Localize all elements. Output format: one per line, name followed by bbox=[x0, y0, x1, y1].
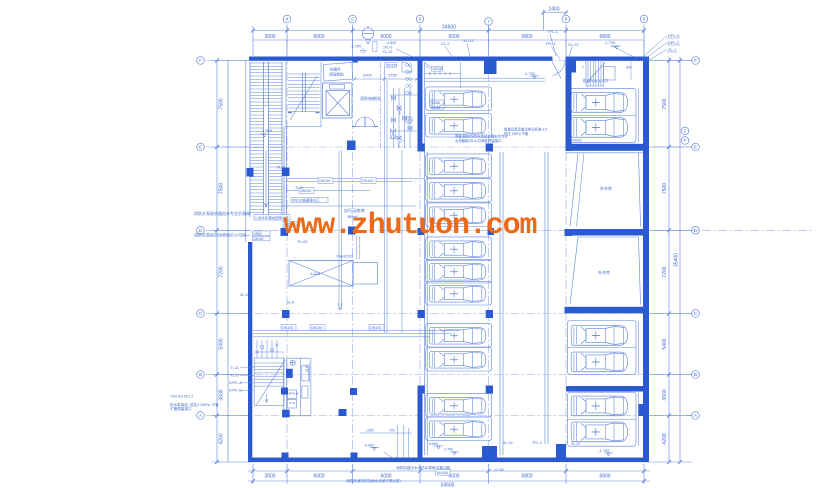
svg-text:外车库: 外车库 bbox=[598, 269, 610, 275]
svg-text:拍烟井: 拍烟井 bbox=[330, 67, 341, 72]
svg-text:5400: 5400 bbox=[662, 338, 668, 349]
svg-text:管道及泵房做法参见标准-1.6: 管道及泵房做法参见标准-1.6 bbox=[504, 127, 547, 132]
svg-text:DN200: DN200 bbox=[571, 139, 582, 143]
svg-text:DN100拍器排水口: DN100拍器排水口 bbox=[292, 197, 320, 202]
svg-text:-0.600: -0.600 bbox=[428, 442, 438, 446]
svg-text:F: F bbox=[694, 58, 697, 63]
svg-text:B: B bbox=[199, 372, 202, 377]
svg-text:6: 6 bbox=[419, 17, 422, 22]
svg-text:4200: 4200 bbox=[662, 433, 668, 444]
svg-text:6000: 6000 bbox=[313, 474, 324, 480]
svg-text:干管预留接口: 干管预留接口 bbox=[170, 406, 192, 411]
svg-text:DN150: DN150 bbox=[319, 179, 330, 183]
svg-text:6800: 6800 bbox=[521, 474, 532, 480]
svg-text:DPL-2: DPL-2 bbox=[668, 40, 680, 45]
svg-text:1: 1 bbox=[582, 65, 584, 69]
svg-text:-1.700: -1.700 bbox=[604, 40, 616, 45]
svg-text:7: 7 bbox=[487, 19, 490, 24]
svg-text:6800: 6800 bbox=[521, 34, 532, 40]
svg-text:700: 700 bbox=[389, 429, 395, 433]
svg-text:外车库: 外车库 bbox=[600, 185, 612, 191]
svg-text:XL-14: XL-14 bbox=[503, 441, 513, 445]
svg-text:YZX-ACT6/1.2: YZX-ACT6/1.2 bbox=[170, 395, 193, 399]
svg-text:500: 500 bbox=[398, 110, 402, 115]
svg-text:XL-22: XL-22 bbox=[571, 442, 580, 446]
svg-text:DN100: DN100 bbox=[254, 237, 264, 241]
svg-text:FL-31: FL-31 bbox=[383, 50, 392, 54]
svg-text:XL-22: XL-22 bbox=[463, 38, 474, 43]
svg-text:E: E bbox=[694, 145, 697, 150]
svg-text:(预留烟道): (预留烟道) bbox=[329, 72, 344, 77]
svg-text:4200: 4200 bbox=[219, 433, 225, 444]
svg-text:DPL-9: DPL-9 bbox=[668, 33, 680, 38]
svg-text:XL-2: XL-2 bbox=[441, 41, 450, 46]
svg-text:F: F bbox=[684, 138, 687, 143]
svg-text:供压 2MPa 干管: 供压 2MPa 干管 bbox=[504, 131, 529, 136]
svg-text:消防水泵房自动喷淋灭火可阀: 消防水泵房自动喷淋灭火可阀 bbox=[194, 232, 246, 238]
svg-text:TPL-2: TPL-2 bbox=[532, 441, 542, 445]
svg-text:DN150: DN150 bbox=[282, 326, 293, 330]
svg-text:-4.800: -4.800 bbox=[386, 41, 396, 45]
svg-text:YFL-1: YFL-1 bbox=[547, 29, 559, 34]
svg-text:KL-D: KL-D bbox=[231, 374, 240, 378]
svg-text:1.850: 1.850 bbox=[262, 128, 273, 133]
svg-text:ZL-1: ZL-1 bbox=[668, 47, 677, 52]
svg-text:3000: 3000 bbox=[264, 34, 275, 40]
svg-text:7500: 7500 bbox=[219, 183, 225, 194]
svg-text:XL-B: XL-B bbox=[289, 401, 295, 405]
svg-text:TL-B: TL-B bbox=[295, 186, 303, 190]
svg-text:2750: 2750 bbox=[388, 73, 398, 78]
svg-text:7500: 7500 bbox=[662, 183, 668, 194]
svg-text:8: 8 bbox=[565, 17, 568, 22]
svg-text:6000: 6000 bbox=[448, 34, 459, 40]
svg-text:TPL-1: TPL-1 bbox=[545, 41, 557, 46]
svg-text:3-AD8: 3-AD8 bbox=[310, 272, 320, 276]
svg-text:34600: 34600 bbox=[441, 483, 455, 488]
svg-text:XL-22: XL-22 bbox=[568, 42, 579, 47]
svg-text:35400: 35400 bbox=[674, 253, 680, 267]
svg-text:2400: 2400 bbox=[548, 7, 559, 13]
svg-text:两管消防DN65水泵接合器由本专业: 两管消防DN65水泵接合器由本专业 bbox=[455, 134, 508, 139]
svg-text:1250: 1250 bbox=[366, 429, 374, 433]
svg-text:-1.700: -1.700 bbox=[524, 71, 536, 76]
svg-text:-1.700: -1.700 bbox=[350, 44, 362, 49]
svg-text:-0.700: -0.700 bbox=[494, 468, 504, 472]
svg-text:2150: 2150 bbox=[305, 364, 309, 372]
svg-text:5: 5 bbox=[351, 17, 354, 22]
svg-text:www.zhutuon.com: www.zhutuon.com bbox=[284, 209, 537, 243]
svg-text:34600: 34600 bbox=[442, 25, 456, 31]
svg-text:6800: 6800 bbox=[599, 474, 610, 480]
svg-text:7500: 7500 bbox=[219, 98, 225, 109]
svg-text:DN50: DN50 bbox=[254, 232, 262, 236]
svg-text:B: B bbox=[694, 372, 697, 377]
svg-text:-1.700: -1.700 bbox=[598, 448, 610, 453]
svg-text:3600: 3600 bbox=[662, 389, 668, 400]
svg-text:7200: 7200 bbox=[219, 266, 225, 277]
svg-text:DN150: DN150 bbox=[311, 326, 322, 330]
svg-text:-1.700: -1.700 bbox=[443, 448, 453, 452]
svg-text:DN150: DN150 bbox=[433, 67, 444, 71]
svg-text:TL-A: TL-A bbox=[231, 366, 239, 370]
svg-text:5400: 5400 bbox=[219, 338, 225, 349]
svg-text:6000: 6000 bbox=[380, 34, 391, 40]
svg-text:E: E bbox=[199, 145, 202, 150]
svg-text:DN150: DN150 bbox=[387, 63, 397, 67]
svg-text:7200: 7200 bbox=[662, 266, 668, 277]
svg-text:2000: 2000 bbox=[363, 73, 373, 78]
svg-text:-0.800: -0.800 bbox=[364, 443, 374, 447]
svg-text:BFPL-B: BFPL-B bbox=[289, 392, 299, 396]
svg-text:DN150: DN150 bbox=[437, 471, 448, 475]
svg-text:DN150: DN150 bbox=[370, 326, 381, 330]
svg-text:6000: 6000 bbox=[313, 34, 324, 40]
svg-text:消防用高压水消防水泵房中第(2楼): 消防用高压水消防水泵房中第(2楼) bbox=[396, 465, 451, 470]
svg-text:大用截取25L/s 共两处预留接口: 大用截取25L/s 共两处预留接口 bbox=[455, 138, 502, 143]
svg-text:4: 4 bbox=[286, 17, 289, 22]
svg-text:7500: 7500 bbox=[662, 98, 668, 109]
svg-text:F: F bbox=[199, 58, 202, 63]
svg-text:2: 2 bbox=[684, 129, 687, 134]
svg-text:XL-6: XL-6 bbox=[287, 301, 294, 305]
svg-text:XL-5: XL-5 bbox=[240, 293, 248, 297]
svg-text:9: 9 bbox=[643, 17, 646, 22]
svg-text:供水泵接给, 供压1.2MPa, 干管: 供水泵接给, 供压1.2MPa, 干管 bbox=[170, 402, 219, 407]
svg-text:FMH1023: FMH1023 bbox=[337, 255, 354, 259]
svg-text:3600: 3600 bbox=[219, 389, 225, 400]
svg-text:消防水泵接合器由本专业负责阀: 消防水泵接合器由本专业负责阀 bbox=[194, 210, 250, 216]
svg-text:3000: 3000 bbox=[264, 474, 275, 480]
svg-text:DN150: DN150 bbox=[362, 179, 373, 183]
svg-text:消防用消防虹吸雨水系统中第(2楼): 消防用消防虹吸雨水系统中第(2楼) bbox=[346, 478, 401, 483]
svg-text:消防电梯间: 消防电梯间 bbox=[360, 95, 380, 101]
svg-text:1FL-6: 1FL-6 bbox=[383, 46, 392, 50]
svg-text:DN50: DN50 bbox=[432, 101, 440, 105]
